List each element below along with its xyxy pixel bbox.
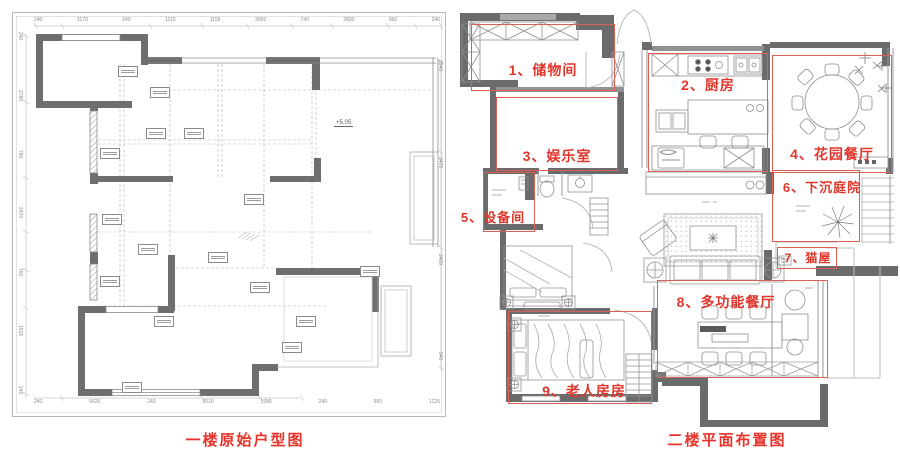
beam-label [122, 382, 142, 393]
beam-label [150, 87, 170, 98]
beam-label [118, 66, 138, 77]
room-label-equipment: 5、设备间 [455, 207, 531, 226]
room-label-cat-house: 7、猫屋 [778, 249, 838, 266]
dims-right: 294034702420940 [437, 60, 443, 360]
drawing-frame [13, 13, 446, 417]
dims-bottom: 2405620240201019902405501225 [34, 399, 440, 405]
annotation-box-kitchen [648, 53, 768, 172]
room-label-courtyard: 6、下沉庭院 [776, 177, 868, 196]
beam-label [296, 316, 316, 327]
room-label-kitchen: 2、厨房 [650, 75, 766, 95]
beam-label [100, 276, 120, 287]
beam-label [154, 316, 174, 327]
room-label-garden-dining: 4、花园餐厅 [770, 144, 894, 164]
beam-label [282, 342, 302, 353]
room-label-entertainment: 3、娱乐室 [498, 146, 616, 166]
right-plan-caption: 二楼平面布置图 [612, 429, 842, 450]
first-floor-plan-drawing [0, 0, 450, 430]
room-label-multi-dining: 8、多功能餐厅 [664, 292, 788, 312]
dims-top: 24031702401110115530657402800960240 [34, 17, 440, 23]
dims-left: 240278078024707601515240 [17, 32, 23, 394]
annotation-box-storage [471, 24, 615, 91]
left-plan-caption: 一楼原始户型图 [130, 429, 360, 450]
sideboard [646, 172, 766, 194]
beam-label [184, 128, 204, 139]
floor-level-marker: +5.05 [334, 120, 353, 127]
beam-label [138, 244, 158, 255]
hatch-scribble [238, 232, 259, 241]
beam-label [250, 282, 270, 293]
dashed-grid [98, 64, 430, 306]
beam-label [102, 214, 122, 225]
walls [36, 34, 379, 396]
beam-label [100, 148, 120, 159]
room-label-elder-room: 9、老人房房 [528, 381, 640, 401]
beam-label [146, 128, 166, 139]
room-label-storage: 1、储物间 [480, 60, 606, 80]
beam-label [360, 266, 380, 277]
beam-label [244, 194, 264, 205]
beam-label [208, 252, 228, 263]
living-room-furniture [639, 202, 784, 284]
